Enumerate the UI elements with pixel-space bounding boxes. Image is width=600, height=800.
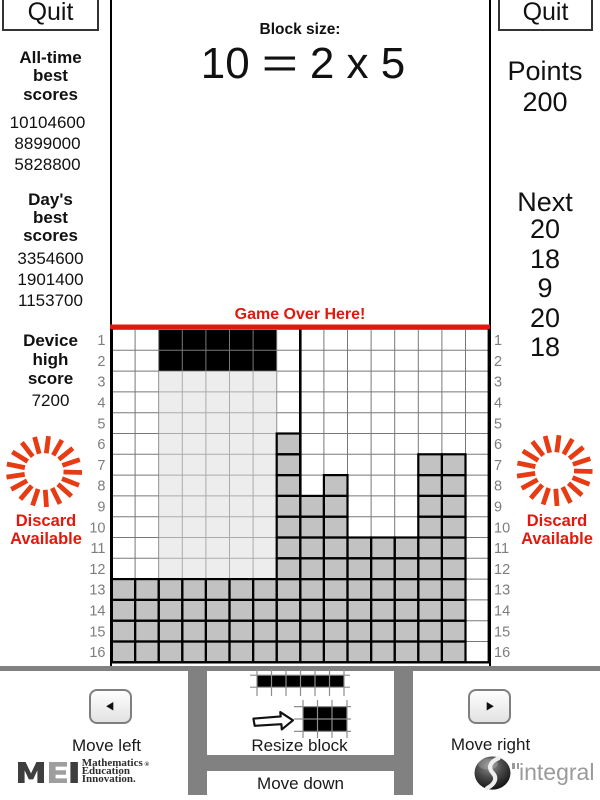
svg-text:11: 11 [494,541,509,557]
svg-text:16: 16 [494,645,510,661]
svg-text:10: 10 [89,520,105,536]
svg-text:13: 13 [494,583,510,599]
svg-text:1: 1 [494,333,502,349]
svg-text:5: 5 [97,416,105,432]
svg-text:16: 16 [89,645,105,661]
svg-text:7: 7 [494,458,502,474]
svg-text:12: 12 [89,562,105,578]
svg-text:9: 9 [494,500,502,516]
svg-text:15: 15 [89,624,105,640]
svg-text:11: 11 [90,541,105,557]
svg-text:7: 7 [97,458,105,474]
svg-text:4: 4 [494,396,502,412]
svg-text:2: 2 [494,354,502,370]
svg-text:6: 6 [97,437,105,453]
svg-text:15: 15 [494,624,510,640]
svg-text:14: 14 [494,604,510,620]
svg-text:5: 5 [494,416,502,432]
svg-text:8: 8 [494,479,502,495]
svg-text:9: 9 [97,500,105,516]
svg-text:13: 13 [89,583,105,599]
svg-text:6: 6 [494,437,502,453]
svg-text:8: 8 [97,479,105,495]
svg-text:14: 14 [89,604,105,620]
svg-text:1: 1 [97,333,105,349]
svg-text:2: 2 [97,354,105,370]
svg-text:3: 3 [494,375,502,391]
svg-text:10: 10 [494,520,510,536]
svg-text:12: 12 [494,562,510,578]
svg-text:3: 3 [97,375,105,391]
svg-text:4: 4 [97,396,105,412]
